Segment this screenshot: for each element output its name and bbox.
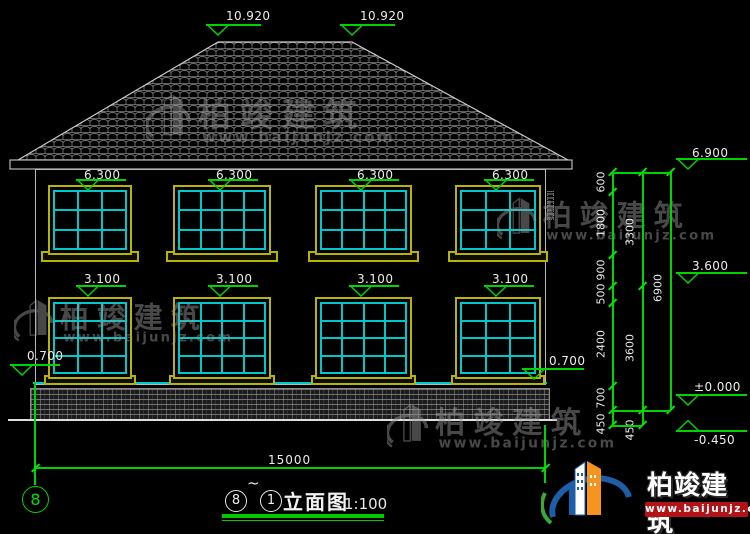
elevation-value: 6.300 <box>84 168 120 182</box>
window-pane <box>487 357 510 373</box>
elevation-value: 10.920 <box>360 9 404 23</box>
window-pane <box>462 304 485 320</box>
window-pane <box>79 357 101 373</box>
window-pane <box>202 192 222 209</box>
title-ref-circle-1: 1 <box>260 490 282 512</box>
watermark: 柏竣建筑www.baijunjz.com <box>14 294 54 349</box>
window-pane <box>365 322 384 338</box>
elevation-triangle-icon <box>76 285 100 297</box>
window-pane <box>511 339 534 355</box>
window-pane <box>386 322 405 338</box>
watermark: 柏竣建筑www.baijunjz.com <box>146 88 192 150</box>
window-pane <box>343 357 362 373</box>
watermark: 柏竣建筑www.baijunjz.com <box>497 192 537 247</box>
dim-connector <box>612 410 670 412</box>
elevation-triangle-icon <box>676 420 700 432</box>
window-pane <box>462 192 485 209</box>
elevation-triangle-icon <box>206 24 230 36</box>
window-pane <box>365 211 384 228</box>
dim-value: 600 <box>595 172 608 193</box>
elevation-value: ±0.000 <box>694 380 741 394</box>
window-pane <box>202 357 222 373</box>
window-pane <box>487 322 510 338</box>
elevation-triangle-icon <box>349 285 373 297</box>
window-pane <box>55 192 77 209</box>
window-pane <box>103 231 125 248</box>
window-pane <box>223 304 243 320</box>
drawing-scale: 1:100 <box>344 495 387 513</box>
dim-value: 700 <box>595 388 608 409</box>
window-pane <box>245 339 265 355</box>
window-glazing <box>178 190 266 250</box>
dim-chain-line <box>642 172 644 425</box>
window-pane <box>103 211 125 228</box>
window-pane <box>245 357 265 373</box>
windows-upper-floor <box>48 185 132 255</box>
dim-value: 6900 <box>652 274 665 302</box>
windows-upper-floor <box>173 185 271 255</box>
dim-value: 450 <box>624 420 637 441</box>
windows-lower-floor <box>455 297 541 379</box>
elevation-value: 3.100 <box>84 272 120 286</box>
logo-company-name: 柏竣建筑 <box>647 465 749 534</box>
elevation-value: 3.100 <box>357 272 393 286</box>
dim-value: 3300 <box>624 218 637 246</box>
watermark-glyph-icon <box>14 294 54 345</box>
dim-value: 450 <box>595 414 608 435</box>
elevation-value: -0.450 <box>694 433 735 447</box>
window-pane <box>245 304 265 320</box>
title-underline-thin <box>222 520 384 521</box>
window-pane <box>55 211 77 228</box>
window-pane <box>322 339 341 355</box>
window-pane <box>343 231 362 248</box>
window-pane <box>343 339 362 355</box>
elevation-triangle-icon <box>208 285 232 297</box>
window-pane <box>79 192 101 209</box>
elevation-triangle-icon <box>676 272 700 284</box>
window-pane <box>322 192 341 209</box>
elevation-value: 0.700 <box>27 349 63 363</box>
window-pane <box>487 304 510 320</box>
window-pane <box>245 322 265 338</box>
total-width-dim: 15000 <box>268 453 311 467</box>
window-pane <box>322 357 341 373</box>
watermark-url: www.baijunjz.com <box>63 329 233 345</box>
window-pane <box>462 339 485 355</box>
window-pane <box>202 231 222 248</box>
window-pane <box>322 231 341 248</box>
elevation-triangle-icon <box>10 364 34 376</box>
elevation-value: 6.300 <box>216 168 252 182</box>
window-pane <box>180 211 200 228</box>
title-underline-thick <box>222 514 384 518</box>
window-glazing <box>460 302 536 374</box>
elevation-drawing-canvas: 柏竣建筑www.baijunjz.com柏竣建筑www.baijunjz.com… <box>0 0 750 534</box>
logo-website: www.baijunjz.com <box>645 502 748 517</box>
window-pane <box>223 231 243 248</box>
window-pane <box>386 339 405 355</box>
watermark-glyph-icon <box>146 88 192 146</box>
company-logo: 柏竣建筑 www.baijunjz.com <box>541 453 749 531</box>
window-pane <box>103 357 125 373</box>
window-pane <box>343 192 362 209</box>
drawing-title: 立面图 <box>283 486 349 515</box>
title-tilde: ~ <box>247 474 260 492</box>
window-pane <box>511 322 534 338</box>
elevation-value: 0.700 <box>549 354 585 368</box>
windows-lower-floor <box>315 297 412 379</box>
window-pane <box>223 211 243 228</box>
window-pane <box>55 231 77 248</box>
elevation-value: 10.920 <box>226 9 270 23</box>
window-pane <box>386 192 405 209</box>
dim-chain-line <box>670 172 672 410</box>
elevation-value: 3.100 <box>216 272 252 286</box>
window-pane <box>365 304 384 320</box>
dim-value: 2400 <box>595 330 608 358</box>
watermark-url: www.baijunjz.com <box>202 128 395 146</box>
elevation-value: 3.600 <box>692 259 728 273</box>
total-dim-line <box>35 467 545 469</box>
window-glazing <box>53 190 127 250</box>
elevation-triangle-icon <box>676 394 700 406</box>
window-pane <box>462 322 485 338</box>
window-pane <box>202 211 222 228</box>
window-pane <box>462 357 485 373</box>
elevation-triangle-icon <box>340 24 364 36</box>
window-pane <box>343 322 362 338</box>
watermark-glyph-icon <box>497 192 537 243</box>
dim-value: 1800 <box>595 209 608 237</box>
window-pane <box>462 211 485 228</box>
window-pane <box>386 231 405 248</box>
watermark-glyph-icon <box>387 398 429 451</box>
window-pane <box>365 339 384 355</box>
dim-value: 900 <box>595 260 608 281</box>
window-pane <box>462 231 485 248</box>
window-pane <box>180 357 200 373</box>
watermark-url: www.baijunjz.com <box>439 435 617 452</box>
window-pane <box>180 192 200 209</box>
window-pane <box>487 339 510 355</box>
window-pane <box>79 231 101 248</box>
grid-axis-bubble-8: 8 <box>22 486 49 513</box>
logo-glyph-icon <box>541 453 641 529</box>
dim-connector <box>612 172 670 174</box>
window-pane <box>245 231 265 248</box>
window-pane <box>343 211 362 228</box>
elevation-value: 3.100 <box>492 272 528 286</box>
title-ref-circle-8: 8 <box>225 490 247 512</box>
elevation-value: 6.900 <box>692 146 728 160</box>
elevation-value: 6.300 <box>357 168 393 182</box>
window-pane <box>245 211 265 228</box>
window-pane <box>322 304 341 320</box>
watermark: 柏竣建筑www.baijunjz.com <box>387 398 429 455</box>
window-pane <box>322 322 341 338</box>
window-pane <box>322 211 341 228</box>
window-pane <box>386 211 405 228</box>
window-glazing <box>320 302 407 374</box>
window-pane <box>365 357 384 373</box>
dim-value: 500 <box>595 284 608 305</box>
window-pane <box>79 211 101 228</box>
window-pane <box>223 192 243 209</box>
window-pane <box>365 231 384 248</box>
window-pane <box>103 192 125 209</box>
window-pane <box>386 304 405 320</box>
window-pane <box>365 192 384 209</box>
window-pane <box>343 304 362 320</box>
window-pane <box>180 231 200 248</box>
window-pane <box>223 357 243 373</box>
window-pane <box>245 192 265 209</box>
elevation-triangle-icon <box>522 368 546 380</box>
window-pane <box>386 357 405 373</box>
window-glazing <box>320 190 407 250</box>
hip-roof <box>0 0 750 185</box>
dim-value: 3600 <box>624 334 637 362</box>
elevation-value: 6.300 <box>492 168 528 182</box>
windows-upper-floor <box>315 185 412 255</box>
elevation-triangle-icon <box>484 285 508 297</box>
window-pane <box>511 304 534 320</box>
dim-connector <box>612 425 642 427</box>
